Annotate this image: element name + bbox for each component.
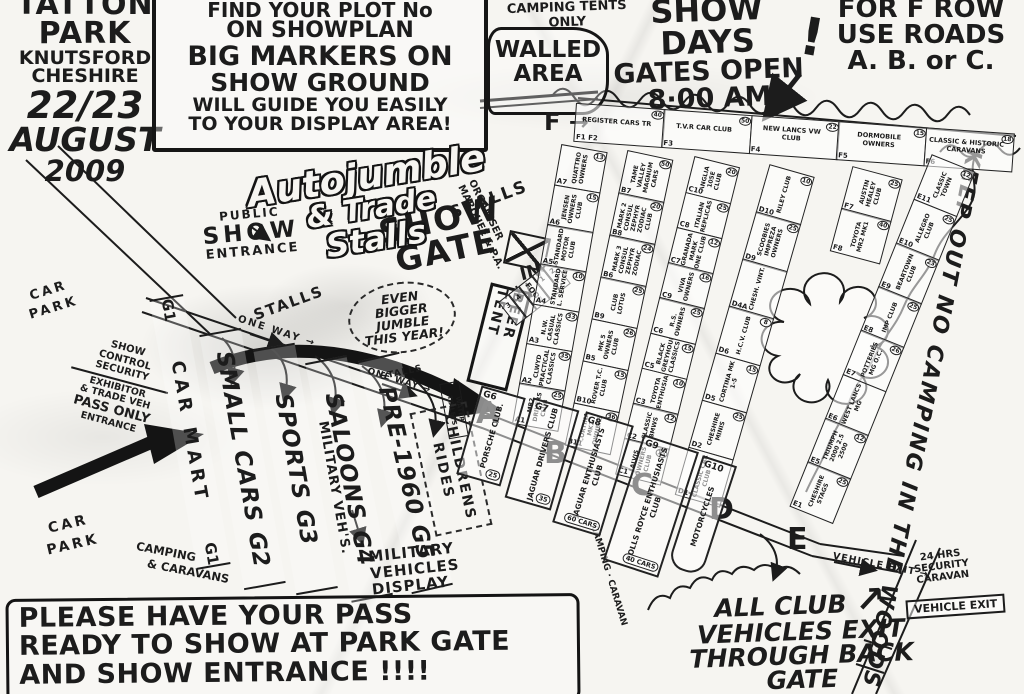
f-row-note: FOR F ROW USE ROADS A. B. or C. [820,0,1022,74]
plot-name: ITALIAN REPLICAS [693,197,715,233]
plot-name: MARK 2 CONSUL ZEPHYR ZODIAC CLUB [616,196,658,243]
notice-line: BIG MARKERS ON [156,43,484,71]
plot-name: ROVER T.C. CLUB [590,366,612,408]
plot-name: H.C.V. CLUB [736,316,754,356]
plot-count: 8 [759,317,773,329]
plot-count: 10 [672,377,686,389]
plot-name: IMP CLUB [882,301,900,333]
plot-count: 25 [835,476,850,489]
plot-name: DORMOBILE OWNERS [837,130,925,157]
plot-name: POTTERIES MG O.C. [859,338,888,384]
plot-name: TRIUMPH 2000 2.5 2500 [820,424,856,473]
plot-name: MK 5 OWNERS CLUB [596,323,625,367]
plot-count: 12 [959,169,974,182]
title-line: PARK [6,19,164,48]
pass-ready-notice: PLEASE HAVE YOUR PASS READY TO SHOW AT P… [5,593,580,694]
road-letter-e: E [787,522,808,557]
plot-id: F3 [663,139,673,148]
plot-cell: 22 NEW LANCS VW CLUB F4 [748,115,840,160]
walled-line: AREA [490,62,606,86]
plot-name: TAME VALLEY MAGNUM CARS [628,154,663,199]
plot-name: MARK 3 CONSUL ZEPHYR ZODIAC [610,238,645,283]
find-plot-notice: FIND YOUR PLOT No ON SHOWPLAN BIG MARKER… [152,0,488,152]
walled-line: WALLED [490,38,606,62]
notice-line: FIND YOUR PLOT No [156,0,484,20]
plot-name: BLACK GREYHOUND CLASSICS [655,337,683,375]
plot-cell: 40 REGISTER CARS TR F1 F2 [574,103,666,148]
lane-id: G3 [290,508,322,547]
plot-name: ALLEGRO CLUB [912,207,941,253]
title-dates: 22/23 [6,88,164,124]
plot-count: 35 [558,351,572,362]
plot-name: REGISTER CARS TR [580,116,660,135]
plot-name: BEARTOWN CLUB [894,250,923,296]
plot-count: 25 [551,390,565,401]
one-way-label: ONE WAY → [236,314,317,350]
plot-name: CORTINA MK 1-5 [718,359,744,407]
plot-count: 20 [724,167,738,179]
plot-id: G10 [703,459,725,475]
plot-count: 10 [799,176,813,188]
title-month: AUGUST [6,124,164,156]
plot-name: N.W. CASUAL CLASSICS [539,307,566,348]
plot-count: 25 [689,307,703,319]
grid-plots-f7-f8: 25 AUSTIN HEALEY CLUB F7 40 TOYOTA MR2 M… [830,168,902,265]
notice-line: ON SHOWPLAN [156,20,484,42]
plot-name: GRANADA MARK ONE CLUB [681,232,709,270]
plot-count: 16 [698,272,712,284]
plot-count: 15 [681,342,695,354]
lane-id: G1 [158,297,180,323]
plot-name: VIVA OWNERS [676,268,698,304]
plot-count: 25 [887,178,901,190]
plot-id: E1 [792,499,804,510]
plot-count: 25 [731,410,745,422]
car-park-label-lower: CAR PARK [40,509,102,562]
plot-name: JAGUAR DRIVERS CLUB [524,407,559,502]
military-vehicles-display-label: MILITARY VEHICLES DISPLAY [368,539,462,598]
plot-name: QUATTRO OWNERS [571,149,591,189]
f-note-line: FOR F ROW [820,0,1022,22]
event-title: TATTON PARK KNUTSFORD CHESHIRE 22/23 AUG… [6,0,164,185]
even-bigger-jumble-burst: EVEN BIGGER JUMBLE THIS YEAR! [344,276,460,359]
plot-count: 26 [622,327,636,338]
plot-count: 26 [888,344,903,357]
plot-count: 15 [613,369,627,380]
plot-name: CHESH. VINT. [749,267,768,312]
plot-count: 15 [745,364,759,376]
plot-name: TOYOTA ENTHUSIASTS [649,373,671,409]
title-year: 2009 [6,157,164,185]
plot-name: STANDARD L. SERVICE [550,268,570,308]
plot-name: CLUB LOTUS [608,282,630,324]
lane-id: G2 [243,530,275,569]
plot-name: SCOOBIES IMPREZA OWNERS [755,217,788,267]
plot-name: CLWYD PRACTICAL CLASSICS [532,347,559,388]
plot-name: TOYOTA MR2 MK1 [849,215,873,258]
plot-count: 13 [592,152,606,163]
plot-id: F4 [751,145,761,154]
plot-id: G7 [534,401,550,414]
plot-count: 25 [906,300,921,313]
car-park-label-upper: CAR PARK [22,275,81,325]
plot-count: 25 [941,213,956,226]
plot-name: MOTORCYCLES [688,485,716,547]
f-note-line: A. B. or C. [820,48,1022,74]
all-club-exit-notice: ALL CLUB ↗ VEHICLES EXIT THROUGH BACK GA… [644,581,957,694]
walled-area: WALLED AREA [487,27,609,115]
plot-count: 35 [534,492,551,506]
plot-name: R.S. OWNERS [667,303,689,339]
plot-count: 12 [707,237,721,249]
plot-name: CLASSIC TOWN [930,163,959,209]
plot-count: 25 [631,285,645,296]
plot-name: CHESHIRE MINIS [705,406,731,454]
plot-id: G6 [482,389,498,402]
plot-id: F1 F2 [576,133,598,142]
stalls-label: STALLS [251,282,326,324]
plot-name: CHESHIRE STAGS [806,469,835,515]
showground-map: TATTON PARK KNUTSFORD CHESHIRE 22/23 AUG… [0,0,1024,694]
plot-name: WEST LANCS MG [841,382,870,428]
plot-name: T.V.R CAR CLUB [674,123,741,141]
plot-count: 33 [565,311,579,322]
plot-name: JENSEN OWNERS CLUB [560,188,587,229]
plot-cell: 15 DORMOBILE OWNERS F5 [836,121,928,166]
plot-name: PORSCHE CLUB. [477,402,504,469]
plot-count: 25 [716,202,730,214]
plot-id: F8 [832,243,843,253]
plot-count: 40 [876,220,890,232]
plot-id: F5 [838,151,848,160]
plot-id: G9 [644,438,660,452]
plot-name: RILEY CLUB [776,176,793,215]
plot-count: 23 [923,257,938,270]
plot-name: STANDARD MOTOR CLUB [553,228,580,269]
f-note-line: USE ROADS [820,22,1022,48]
plot-count: 25 [785,223,799,235]
show-days-notice: SHOW DAYS GATES OPEN 8·00 AM [600,0,816,116]
lane-label: SPORTS [269,391,313,502]
plot-name: AUSTIN HEALEY CLUB [857,173,887,217]
plot-count: 25 [484,468,501,482]
plot-cell: 50 T.V.R CAR CLUB F3 [661,109,753,154]
notice-line: SHOW GROUND [156,70,484,96]
lane-id: G1 [201,541,223,567]
pass-line: AND SHOW ENTRANCE !!!! [19,656,567,690]
plot-count: 10 [572,271,586,282]
notice-line: TO YOUR DISPLAY AREA! [156,115,484,134]
plot-name: ANGLIA 105E CLUB [698,161,726,199]
plot-count: 12 [663,413,677,425]
plot-count: 15 [586,192,600,203]
